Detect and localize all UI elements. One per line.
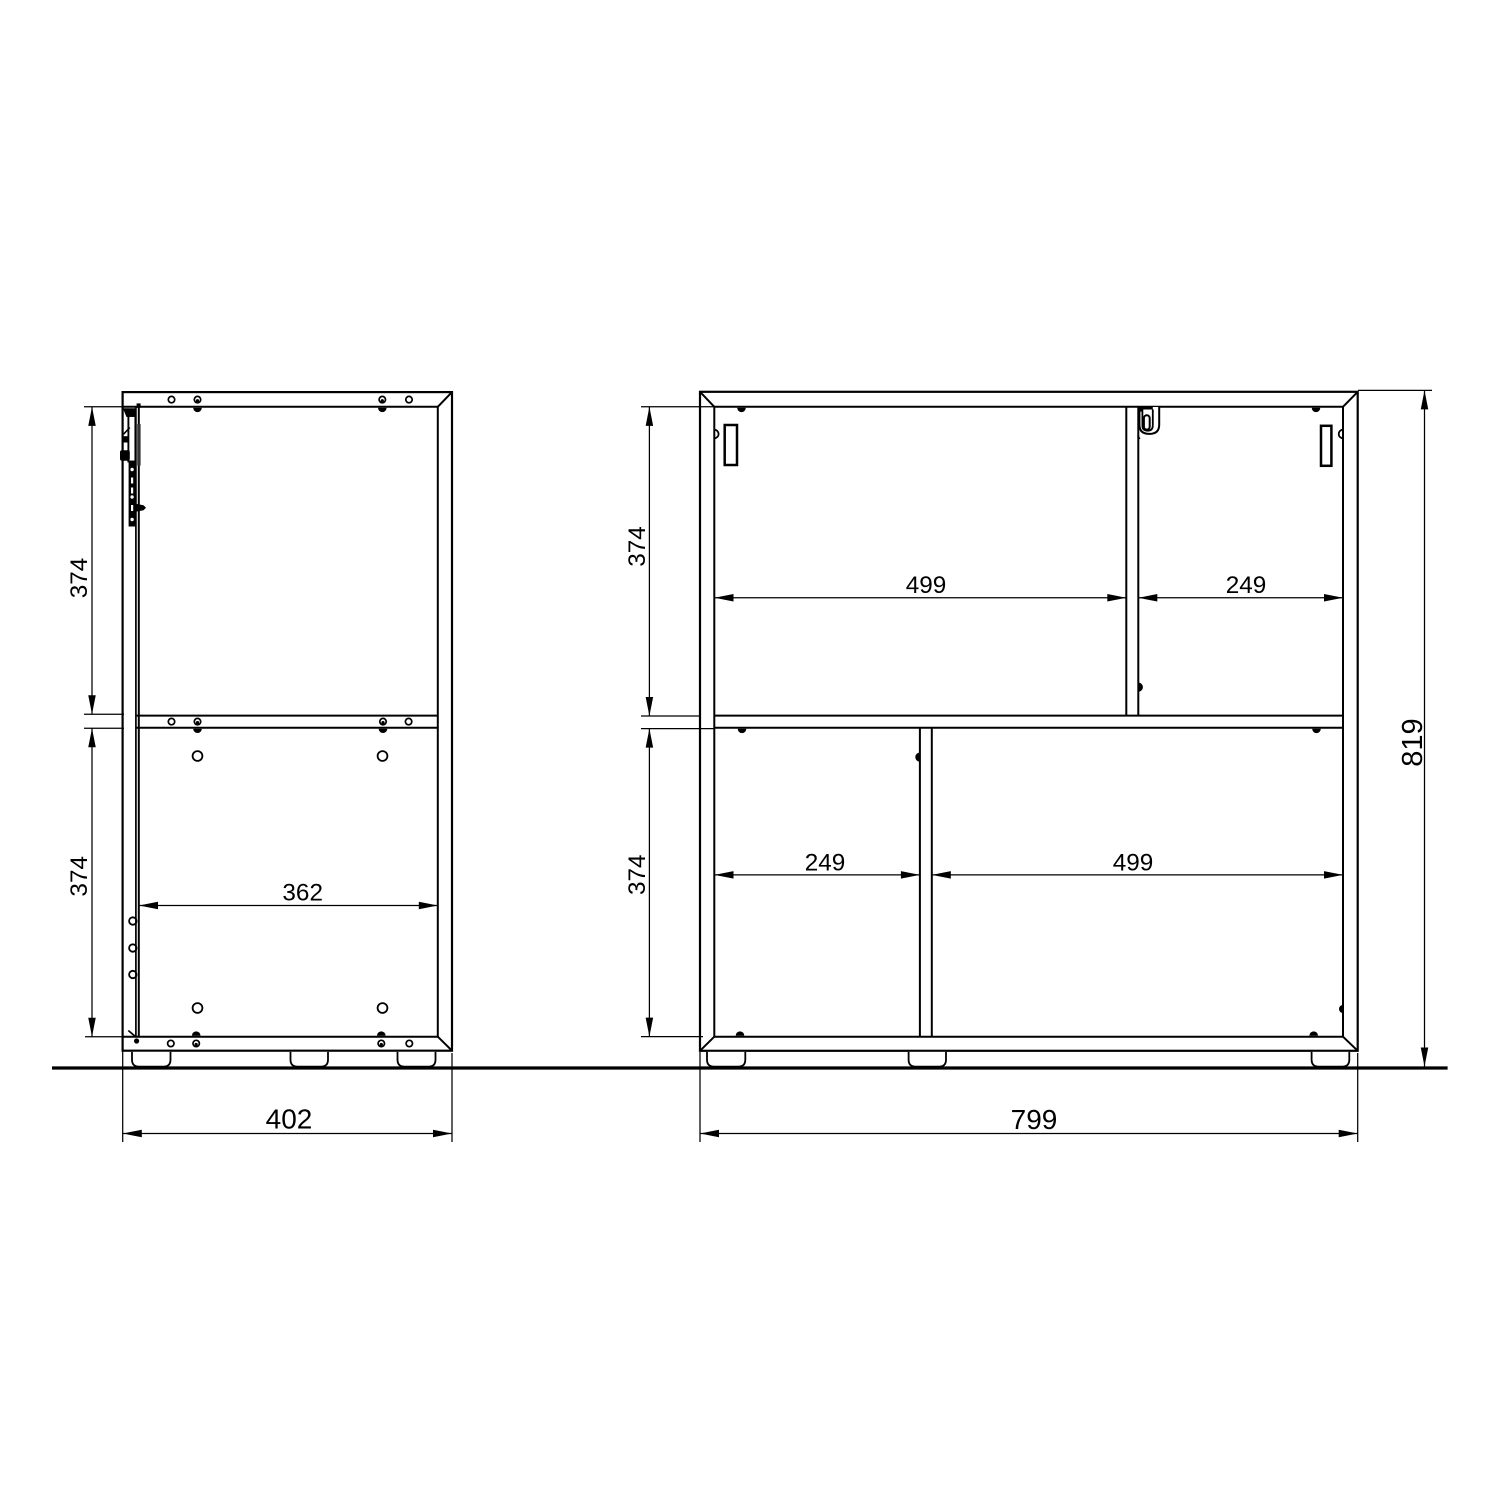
svg-text:374: 374 xyxy=(624,854,651,895)
svg-text:499: 499 xyxy=(1113,849,1154,876)
svg-text:799: 799 xyxy=(1011,1104,1058,1135)
svg-text:374: 374 xyxy=(66,558,93,599)
svg-text:499: 499 xyxy=(906,572,947,599)
svg-text:374: 374 xyxy=(624,526,651,567)
svg-text:249: 249 xyxy=(1226,572,1267,599)
svg-text:374: 374 xyxy=(66,856,93,897)
svg-text:362: 362 xyxy=(282,879,323,906)
svg-text:819: 819 xyxy=(1397,718,1429,766)
svg-text:249: 249 xyxy=(805,849,846,876)
svg-text:402: 402 xyxy=(266,1103,313,1134)
